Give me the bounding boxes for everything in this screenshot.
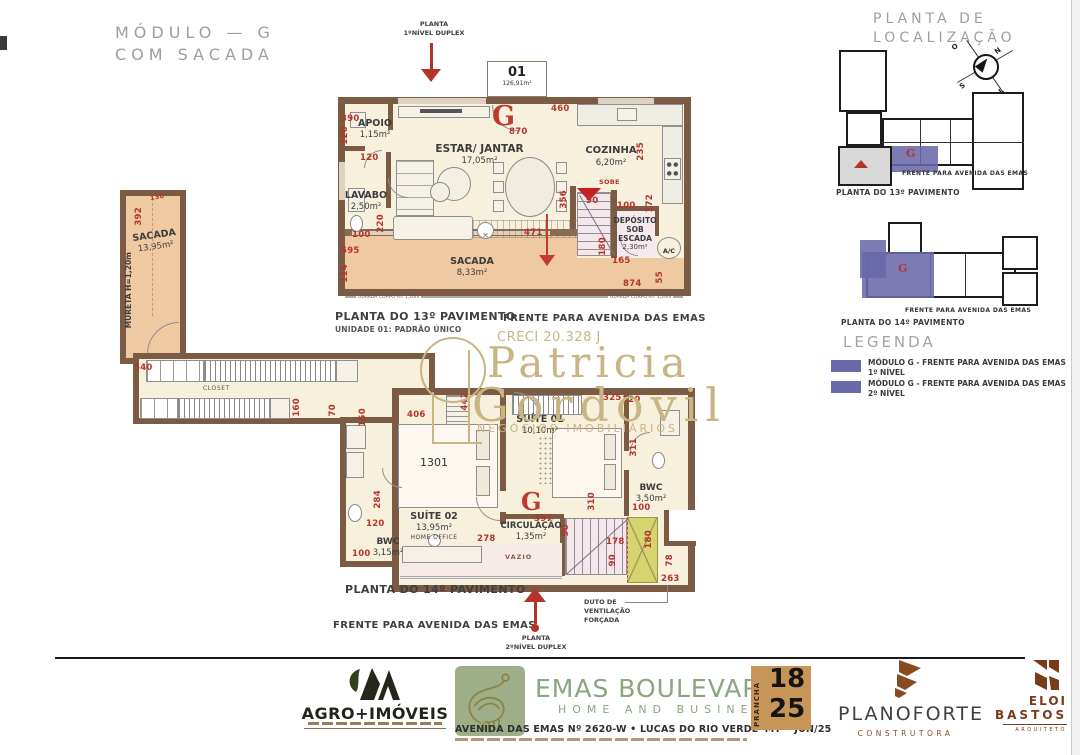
dim: 356: [560, 190, 569, 209]
dim: 220: [377, 214, 386, 233]
dim: 90: [609, 554, 618, 566]
legend-swatch-1: [831, 360, 861, 372]
plan2-arrow-label-1: PLANTA: [494, 634, 578, 643]
edge-tick: [0, 36, 7, 50]
ac-unit-circle: A/C: [657, 237, 681, 259]
legend-title-text: LEGENDA: [843, 333, 936, 351]
dim: 278: [477, 535, 496, 544]
building-block: [839, 50, 887, 112]
dim: 180: [599, 237, 608, 256]
pillow: [604, 434, 616, 460]
duct-leader-h: [625, 602, 668, 603]
dim: 310: [588, 492, 597, 511]
location-caption-14: PLANTA DO 14º PAVIMENTO: [841, 318, 965, 327]
module-g-highlight-14b: [862, 252, 934, 298]
dim: 120: [341, 126, 350, 145]
dim: 471: [524, 229, 543, 238]
page-title: MÓDULO — G COM SACADA: [115, 22, 275, 65]
plan1-caption-text: PLANTA DO 13º PAVIMENTO: [335, 310, 516, 323]
plan1-arrow-label: PLANTA 1ºNÍVEL DUPLEX: [392, 20, 476, 38]
room-deposito-l1: DEPÓSITO: [610, 216, 660, 225]
eloi-name2-text: BASTOS: [995, 708, 1067, 722]
toilet: [348, 504, 362, 522]
eloi-sub: ARQUITETO: [995, 727, 1067, 733]
planoforte-icon: [883, 660, 929, 700]
room-cozinha-area: 6,20m²: [578, 158, 644, 169]
page-title-line1: MÓDULO — G: [115, 22, 275, 44]
wall: [345, 146, 365, 151]
location-front-14: FRENTE PARA AVENIDA DAS EMAS: [905, 307, 1031, 314]
plan2-caption: PLANTA DO 14º PAVIMENTO: [345, 583, 526, 596]
eloi-name2: BASTOS: [995, 708, 1067, 722]
bwc1-sink: [660, 410, 680, 436]
dim: 120: [622, 396, 641, 405]
watermark-creci: CRECI 20.328 J: [497, 330, 601, 345]
dim: 178: [606, 538, 625, 547]
module-g-letter: G: [906, 147, 915, 160]
room-estar-name: ESTAR/ JANTAR: [435, 143, 523, 155]
room-suite01-name: SUÍTE 01: [516, 414, 564, 425]
dim: 263: [661, 575, 680, 584]
laundry-cabinet: [346, 425, 366, 449]
side-table: ✕: [477, 222, 494, 239]
eloi-name1: ELOI: [995, 694, 1067, 708]
ventilation-duct: [627, 517, 658, 583]
dim: 397: [534, 515, 553, 524]
rug-circle-small: [430, 182, 450, 202]
wall: [500, 395, 506, 491]
side-table-x: ✕: [482, 231, 489, 240]
location-caption-13: PLANTA DO 13º PAVIMENTO: [836, 188, 960, 197]
prancha-box: PRANCHA 18 25: [751, 666, 811, 730]
unit-1301-text: 1301: [420, 456, 448, 469]
closet-shelves: [146, 360, 204, 382]
room-bwc1-name: BWC: [640, 483, 663, 493]
room-apoio-name: APOIO: [358, 118, 392, 129]
plan1-front-text: FRENTE PARA AVENIDA DAS EMAS: [503, 313, 706, 324]
emas-disclaimer-blur: [455, 738, 747, 741]
guard-rail-label: GUARDA CORPO H= 1,20m: [356, 296, 421, 301]
dim: 180: [645, 530, 654, 549]
emas-sub: HOME AND BUSINESS: [558, 703, 780, 716]
facade-notch: [664, 510, 696, 546]
module-g-letter: G: [898, 262, 907, 275]
emas-name-text: EMAS BOULEVARD: [535, 674, 781, 703]
room-sacada: SACADA 8,33m²: [440, 256, 504, 279]
pillow: [476, 430, 490, 460]
footer-divider: [55, 657, 1025, 659]
building-line: [882, 142, 1024, 143]
room-circulacao: CIRCULAÇÃO 1,35m²: [494, 521, 568, 542]
room-estar: ESTAR/ JANTAR 17,05m²: [427, 143, 532, 167]
pillow: [604, 464, 616, 490]
agro-logo-icon: [342, 662, 408, 702]
building-line: [965, 254, 966, 296]
presentation-board: MÓDULO — G COM SACADA PLANTA 1ºNÍVEL DUP…: [0, 0, 1080, 755]
dim: 160: [293, 398, 302, 417]
room-sacada-area: 8,33m²: [440, 268, 504, 279]
room-bwc2-area: 3,15m²: [366, 548, 410, 559]
duct-label-1: DUTO DE: [584, 598, 630, 607]
plan1-subcaption: UNIDADE 01: PADRÃO ÚNICO: [335, 325, 461, 334]
vazio-text: VAZIO: [505, 553, 532, 561]
dim: 100: [617, 202, 636, 211]
legend-title: LEGENDA: [843, 332, 936, 352]
room-lavabo-area: 2,50m²: [340, 202, 392, 213]
plan1-arrow-line: [430, 43, 433, 70]
plan2-front-label: FRENTE PARA AVENIDA DAS EMAS: [333, 620, 536, 631]
dim: 90: [562, 524, 571, 536]
dim: 114: [341, 264, 350, 283]
agro-name: AGRO+IMÓVEIS: [300, 704, 450, 723]
eloi-logo: ELOI BASTOS ARQUITETO: [995, 660, 1067, 733]
planoforte-name-text: PLANOFORTE: [838, 703, 984, 725]
page-title-line2: COM SACADA: [115, 44, 275, 66]
room-lavabo: LAVABO 2,50m²: [340, 190, 392, 213]
plan1-subcaption-text: UNIDADE 01: PADRÃO ÚNICO: [335, 325, 461, 334]
room-bwc2-name: BWC: [377, 537, 400, 547]
toilet: [652, 452, 665, 469]
eloi-sub-text: ARQUITETO: [1015, 727, 1067, 733]
location-plan-13: G FRENTE PARA AVENIDA DAS EMAS PLANTA DO…: [830, 42, 1040, 202]
vazio-label: VAZIO: [505, 553, 532, 561]
dim: 120: [366, 520, 385, 529]
plan1-arrow-label-2: 1ºNÍVEL DUPLEX: [392, 29, 476, 38]
closet-cabinet: [270, 398, 290, 419]
legend-item-1-level: 1º NÍVEL: [868, 368, 1066, 378]
room-cozinha-name: COZINHA: [585, 145, 636, 156]
dim: 100: [352, 550, 371, 559]
chair: [493, 181, 504, 193]
dim: 460: [551, 105, 570, 114]
sofa: [393, 216, 473, 240]
room-suite01-area: 10,10m²: [503, 426, 577, 437]
closet-hanging: [204, 360, 336, 382]
prancha-den: 25: [769, 694, 805, 724]
eloi-underline: [1003, 724, 1067, 725]
dim: 150: [359, 408, 368, 427]
emas-sub-text: HOME AND BUSINESS: [558, 703, 780, 716]
guard-rail-text-1: GUARDA CORPO H= 1,20m: [358, 295, 419, 300]
closet-text: CLOSET: [203, 385, 230, 392]
room-suite02-name: SUÍTE 02: [410, 511, 458, 522]
dim: 390: [341, 115, 360, 124]
bwc2-sink: [346, 452, 364, 478]
plan2-arrow-label: PLANTA 2ºNÍVEL DUPLEX: [494, 634, 578, 652]
prancha-label: PRANCHA: [753, 669, 761, 727]
planoforte-sub: CONSTRUTORA: [838, 729, 973, 738]
dim: 325: [603, 394, 622, 403]
dim: 595: [341, 247, 360, 256]
dim: 100: [632, 504, 651, 513]
building-block: [1002, 272, 1038, 306]
closet-cabinet: [336, 360, 358, 382]
room-suite02-area: 13,95m²: [396, 523, 472, 534]
room-deposito-l3: ESCADA: [610, 234, 660, 243]
roof-mark: [854, 160, 868, 168]
dim: 90: [586, 197, 598, 206]
emas-name: EMAS BOULEVARD: [535, 674, 781, 703]
chair: [556, 162, 567, 174]
dim: 70: [329, 404, 338, 416]
agro-underline: [304, 728, 446, 729]
room-deposito: DEPÓSITO SOB ESCADA 2,30m²: [610, 216, 660, 251]
duplex-arrow-line: [546, 214, 548, 256]
legend-item-1: MÓDULO G - FRENTE PARA AVENIDA DAS EMAS …: [868, 358, 1066, 378]
duct-label-2: VENTILAÇÃO: [584, 607, 630, 616]
unit-area: 126,91m²: [488, 80, 546, 87]
location-front-13: FRENTE PARA AVENIDA DAS EMAS: [902, 170, 1028, 177]
stove: [664, 158, 681, 180]
plan1-arrow-head: [421, 69, 441, 82]
eloi-name1-text: ELOI: [1029, 694, 1067, 708]
room-bwc1: BWC 3,50m²: [628, 483, 674, 505]
ac-label: A/C: [663, 247, 675, 255]
room-deposito-area: 2,30m²: [610, 243, 660, 251]
dim: 540: [134, 364, 153, 373]
sobe-label: SOBE: [599, 179, 620, 186]
agro-name-text: AGRO+IMÓVEIS: [302, 704, 449, 723]
planoforte-name: PLANOFORTE: [838, 703, 973, 725]
eloi-icon: [1027, 660, 1061, 692]
planoforte-logo: PLANOFORTE CONSTRUTORA: [838, 660, 973, 738]
plan1-caption: PLANTA DO 13º PAVIMENTO: [335, 310, 516, 323]
dim: 55: [656, 271, 665, 283]
legend-item-2-level: 2º NÍVEL: [868, 389, 1066, 399]
legend-item-2: MÓDULO G - FRENTE PARA AVENIDA DAS EMAS …: [868, 379, 1066, 399]
dim: 235: [637, 142, 646, 161]
dim: 870: [509, 128, 528, 137]
room-sacada-name: SACADA: [450, 256, 494, 267]
building-block: [846, 112, 882, 146]
plan2-arrow-line: [534, 600, 537, 624]
location-plan-14: G FRENTE PARA AVENIDA DAS EMAS PLANTA DO…: [830, 214, 1045, 334]
dim: 120: [360, 154, 379, 163]
closet-hanging: [178, 398, 270, 419]
dim: 165: [612, 257, 631, 266]
prancha-num: 18: [769, 664, 805, 694]
room-bwc2: BWC 3,15m²: [366, 537, 410, 559]
room-lavabo-name: LAVABO: [345, 190, 387, 201]
dim: 392: [135, 207, 144, 226]
suite02-unit-label: 1301: [404, 456, 464, 469]
room-cozinha: COZINHA 6,20m²: [578, 145, 644, 168]
plan1-front-label: FRENTE PARA AVENIDA DAS EMAS: [503, 313, 706, 324]
tv: [420, 109, 462, 113]
room-suite01: SUÍTE 01 10,10m²: [503, 414, 577, 437]
plan1-arrow-label-1: PLANTA: [392, 20, 476, 29]
room-apoio-area: 1,15m²: [351, 130, 399, 141]
mureta-label: MURETA H=1,20m: [124, 252, 133, 328]
plan2-arrow-dot: [531, 624, 539, 632]
dim: 284: [374, 490, 383, 509]
guard-rail-label: GUARDA CORPO H= 1,20m: [608, 296, 673, 301]
agro-logo: AGRO+IMÓVEIS: [300, 662, 450, 723]
dim: 311: [630, 438, 639, 457]
plan2-caption-text: PLANTA DO 14º PAVIMENTO: [345, 583, 526, 596]
dim: 78: [666, 554, 675, 566]
guard-rail-text-2: GUARDA CORPO H= 1,20m: [610, 295, 671, 300]
closet-label: CLOSET: [203, 385, 230, 392]
plan2-arrow-label-2: 2ºNÍVEL DUPLEX: [494, 643, 578, 652]
room-estar-area: 17,05m²: [427, 156, 532, 167]
duct-leader-v: [667, 585, 668, 603]
duct-label-3: FORÇADA: [584, 616, 630, 625]
unit-tag-box: 01 126,91m²: [487, 61, 547, 97]
chair: [493, 200, 504, 212]
legend-swatch-2: [831, 381, 861, 393]
dim: 172: [646, 194, 655, 213]
closet-shelves: [140, 398, 178, 419]
duplex-arrow-head: [539, 255, 555, 266]
building-block: [1002, 236, 1038, 270]
dim: 442: [461, 392, 470, 411]
plan2-front-text: FRENTE PARA AVENIDA DAS EMAS: [333, 620, 536, 631]
room-circulacao-area: 1,35m²: [494, 532, 568, 543]
pillow: [476, 466, 490, 496]
window: [398, 98, 486, 104]
projection-dashed-line: [152, 198, 153, 316]
watermark-name1: Patricia: [487, 338, 691, 387]
dim: 406: [407, 411, 426, 420]
vazio-rail: [400, 576, 562, 579]
unit-number: 01: [488, 65, 546, 80]
duct-label: DUTO DE VENTILAÇÃO FORÇADA: [584, 598, 630, 624]
room-deposito-l2: SOB: [610, 225, 660, 234]
agro-tagline-blur: [308, 722, 442, 725]
dim: 100: [352, 231, 371, 240]
watermark-creci-text: CRECI 20.328 J: [497, 330, 601, 345]
mureta-text: MURETA H=1,20m: [124, 252, 133, 328]
planoforte-sub-text: CONSTRUTORA: [858, 729, 954, 738]
watermark-name1-text: Patricia: [487, 338, 691, 387]
module-letter-g-14: G: [521, 487, 542, 516]
right-edge-strip: [1071, 0, 1080, 755]
home-office-desk: [402, 546, 482, 563]
legend-item-2-label: MÓDULO G - FRENTE PARA AVENIDA DAS EMAS: [868, 379, 1066, 389]
kitchen-sink: [617, 108, 637, 121]
legend-item-1-label: MÓDULO G - FRENTE PARA AVENIDA DAS EMAS: [868, 358, 1066, 368]
dim: 874: [623, 280, 642, 289]
